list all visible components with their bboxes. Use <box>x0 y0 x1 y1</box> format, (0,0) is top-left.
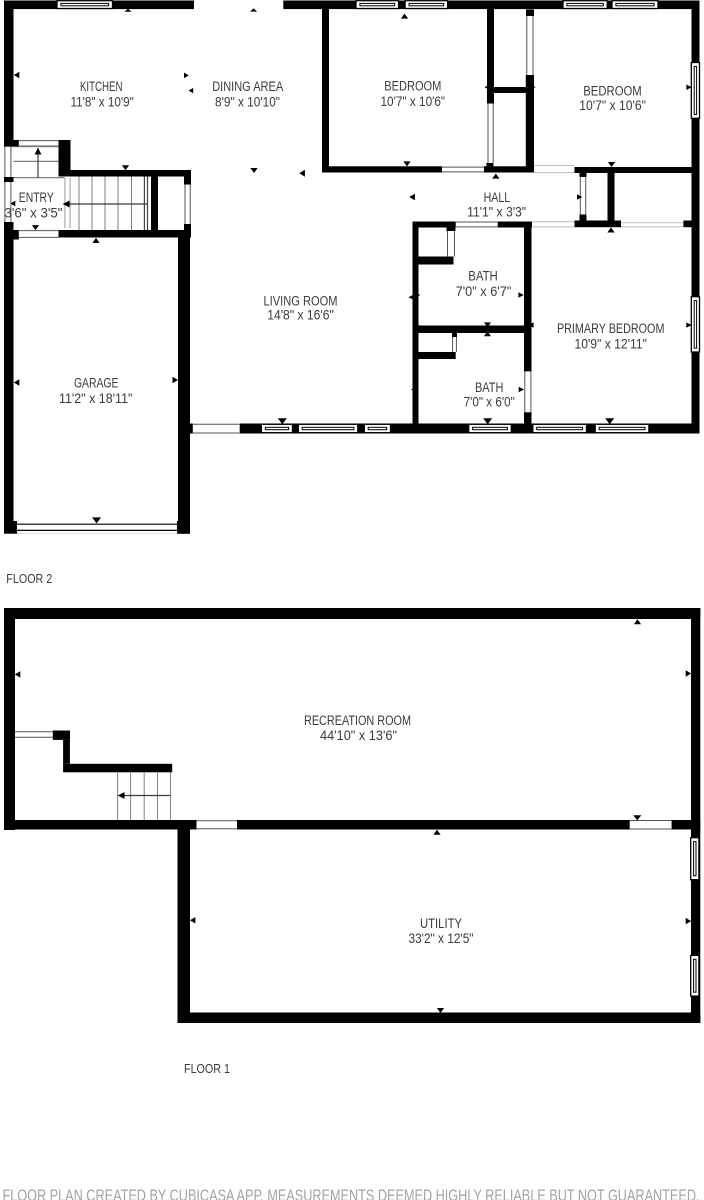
svg-text:7'0" x 6'7": 7'0" x 6'7" <box>456 284 512 299</box>
svg-text:UTILITY: UTILITY <box>420 916 462 931</box>
svg-text:11'8" x 10'9": 11'8" x 10'9" <box>70 95 133 110</box>
svg-text:BEDROOM: BEDROOM <box>583 83 642 98</box>
svg-text:10'7" x 10'6": 10'7" x 10'6" <box>579 98 646 113</box>
svg-text:BATH: BATH <box>475 380 503 395</box>
svg-text:7'0" x 6'0": 7'0" x 6'0" <box>464 395 515 410</box>
svg-text:FLOOR PLAN CREATED BY CUBICASA: FLOOR PLAN CREATED BY CUBICASA APP. MEAS… <box>3 1187 700 1200</box>
svg-text:11'2" x 18'11": 11'2" x 18'11" <box>59 391 133 406</box>
svg-text:LIVING ROOM: LIVING ROOM <box>264 294 338 309</box>
svg-text:10'7" x 10'6": 10'7" x 10'6" <box>381 94 446 109</box>
svg-text:14'8" x 16'6": 14'8" x 16'6" <box>267 308 334 323</box>
svg-text:FLOOR 2: FLOOR 2 <box>6 571 52 586</box>
svg-text:RECREATION ROOM: RECREATION ROOM <box>304 713 411 728</box>
svg-text:PRIMARY BEDROOM: PRIMARY BEDROOM <box>557 321 665 336</box>
svg-text:11'1" x 3'3": 11'1" x 3'3" <box>467 205 526 220</box>
svg-text:BATH: BATH <box>468 269 498 284</box>
svg-text:DINING AREA: DINING AREA <box>212 79 283 94</box>
svg-text:8'9" x 10'10": 8'9" x 10'10" <box>215 95 280 110</box>
svg-text:3'6" x 3'5": 3'6" x 3'5" <box>5 206 63 221</box>
svg-text:33'2" x 12'5": 33'2" x 12'5" <box>409 931 474 946</box>
svg-text:HALL: HALL <box>484 190 511 205</box>
svg-text:10'9" x 12'11": 10'9" x 12'11" <box>574 337 647 352</box>
svg-text:GARAGE: GARAGE <box>74 376 119 391</box>
svg-text:KITCHEN: KITCHEN <box>80 79 123 94</box>
svg-text:44'10" x 13'6": 44'10" x 13'6" <box>320 728 397 743</box>
svg-text:ENTRY: ENTRY <box>19 190 54 205</box>
svg-text:FLOOR 1: FLOOR 1 <box>184 1061 230 1076</box>
svg-text:BEDROOM: BEDROOM <box>384 79 441 94</box>
